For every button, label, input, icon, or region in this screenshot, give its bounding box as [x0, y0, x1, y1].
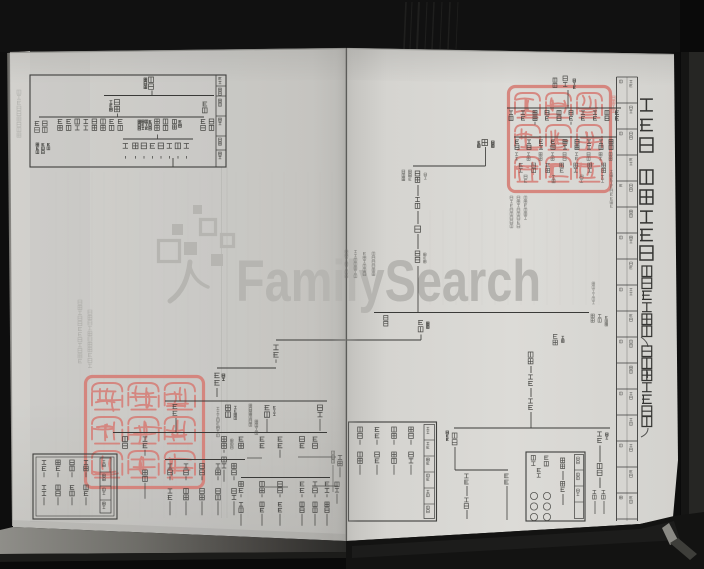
svg-text:FamilySearch: FamilySearch: [236, 249, 541, 314]
